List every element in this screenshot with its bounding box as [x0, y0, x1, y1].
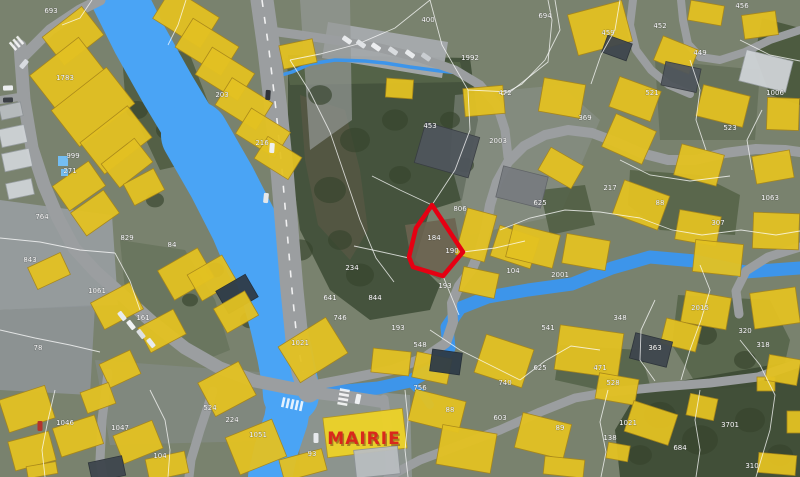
parcel-number-label: 1021	[619, 419, 637, 427]
parcel-number-label: 1021	[291, 339, 309, 347]
tree-canopy	[440, 112, 460, 128]
mairie-label: MAIRIE	[327, 429, 400, 449]
parcel-number-label: 104	[153, 452, 167, 460]
tree-canopy	[389, 166, 411, 184]
parcel-number-label: 184	[427, 234, 441, 242]
map-viewport[interactable]: 6931783203216788431061161999271764829841…	[0, 0, 800, 477]
parcel-number-label: 2003	[489, 137, 507, 145]
parcel-number-label: 472	[498, 89, 511, 97]
parcel-number-label: 1783	[56, 74, 74, 82]
building-footprint	[385, 78, 413, 99]
parcel-number-label: 625	[533, 199, 546, 207]
building-footprint	[752, 212, 799, 250]
parcel-number-label: 89	[556, 424, 565, 432]
parcel-number-label: 138	[603, 434, 616, 442]
parcel-number-label: 2001	[551, 271, 569, 279]
poi-labels-layer: MAIRIEMAIRIE	[327, 429, 402, 451]
parcel-number-label: 459	[601, 29, 614, 37]
parcel-number-label: 625	[533, 364, 546, 372]
parcel-number-label: 320	[738, 327, 751, 335]
tree-canopy	[382, 109, 408, 130]
building-footprint	[752, 150, 794, 184]
tree-canopy	[734, 351, 756, 369]
parcel-number-label: 161	[136, 314, 149, 322]
building-footprint	[606, 442, 630, 462]
tree-canopy	[340, 128, 370, 153]
parcel-number-label: 93	[308, 450, 317, 458]
parcel-number-label: 1006	[766, 89, 784, 97]
tree-canopy	[182, 293, 198, 306]
parcel-number-label: 1047	[111, 424, 129, 432]
parcel-number-label: 190	[445, 247, 458, 255]
parcel-number-label: 1063	[761, 194, 779, 202]
parcel-number-label: 541	[541, 324, 554, 332]
parcel-number-label: 740	[498, 379, 511, 387]
parcel-number-label: 471	[593, 364, 606, 372]
building-footprint	[538, 78, 585, 119]
building-footprint	[543, 456, 585, 477]
car	[265, 90, 271, 100]
parcel-number-label: 104	[506, 267, 520, 275]
parcel-number-label: 603	[493, 414, 506, 422]
car	[3, 85, 13, 90]
parcel-number-label: 829	[120, 234, 133, 242]
parcel-number-label: 641	[323, 294, 336, 302]
tree-canopy	[314, 177, 346, 203]
building-footprint	[554, 325, 624, 378]
building-footprint	[371, 348, 411, 376]
parcel-number-label: 1061	[88, 287, 106, 295]
parcel-number-label: 1046	[56, 419, 74, 427]
parcel-number-label: 456	[735, 2, 749, 10]
parcel-number-label: 88	[446, 406, 455, 414]
parcel-number-label: 78	[34, 344, 43, 352]
car	[38, 421, 43, 431]
terrain-patch	[0, 305, 95, 395]
building-footprint	[692, 240, 743, 277]
building-footprint	[787, 411, 800, 433]
tree-canopy	[328, 230, 352, 250]
parcel-number-label: 694	[538, 12, 552, 20]
parcel-number-label: 521	[645, 89, 658, 97]
parcel-number-label: 348	[613, 314, 626, 322]
building-footprint	[766, 97, 799, 130]
parcel-number-label: 88	[656, 199, 665, 207]
parcel-number-label: 307	[711, 219, 724, 227]
parcel-number-label: 203	[215, 91, 228, 99]
parcel-number-label: 3701	[721, 421, 739, 429]
parcel-number-label: 193	[391, 324, 404, 332]
parcel-number-label: 548	[413, 341, 426, 349]
parcel-number-label: 746	[333, 314, 347, 322]
parcel-number-label: 528	[606, 379, 619, 387]
car	[3, 97, 13, 102]
parcel-number-label: 756	[413, 384, 427, 392]
parcel-number-label: 193	[438, 282, 451, 290]
tree-canopy	[628, 445, 652, 465]
parcel-number-label: 216	[255, 139, 269, 147]
building-footprint	[750, 287, 800, 329]
car	[263, 193, 269, 203]
parcel-number-label: 843	[23, 256, 36, 264]
parcel-number-label: 684	[673, 444, 687, 452]
parcel-number-label: 310	[745, 462, 758, 470]
building-footprint	[741, 11, 778, 39]
car	[314, 433, 319, 443]
parcel-number-label: 999	[66, 152, 79, 160]
parcel-number-label: 844	[368, 294, 382, 302]
parcel-number-label: 452	[653, 22, 666, 30]
tree-canopy	[735, 408, 765, 433]
parcel-number-label: 224	[225, 416, 239, 424]
parcel-number-label: 2015	[691, 304, 709, 312]
parcel-number-label: 1051	[249, 431, 267, 439]
parcel-number-label: 523	[723, 124, 736, 132]
parcel-number-label: 693	[44, 7, 57, 15]
parcel-number-label: 400	[421, 16, 434, 24]
building-footprint	[757, 452, 797, 475]
parcel-number-label: 764	[35, 213, 49, 221]
parcel-number-label: 806	[453, 205, 467, 213]
building-footprint	[430, 349, 463, 375]
parcel-number-label: 84	[168, 241, 177, 249]
parcel-number-label: 369	[578, 114, 591, 122]
parcel-number-label: 271	[63, 167, 76, 175]
building-footprint	[765, 354, 800, 385]
cadastral-aerial-map[interactable]: 6931783203216788431061161999271764829841…	[0, 0, 800, 477]
car	[269, 143, 275, 153]
parcel-number-label: 217	[603, 184, 616, 192]
parcel-number-label: 234	[345, 264, 359, 272]
parcel-number-label: 449	[693, 49, 706, 57]
parcel-number-label: 1992	[461, 54, 479, 62]
parcel-number-label: 363	[648, 344, 661, 352]
parcel-number-label: 453	[423, 122, 436, 130]
parcel-number-label: 318	[756, 341, 769, 349]
parcel-number-label: 524	[203, 404, 217, 412]
